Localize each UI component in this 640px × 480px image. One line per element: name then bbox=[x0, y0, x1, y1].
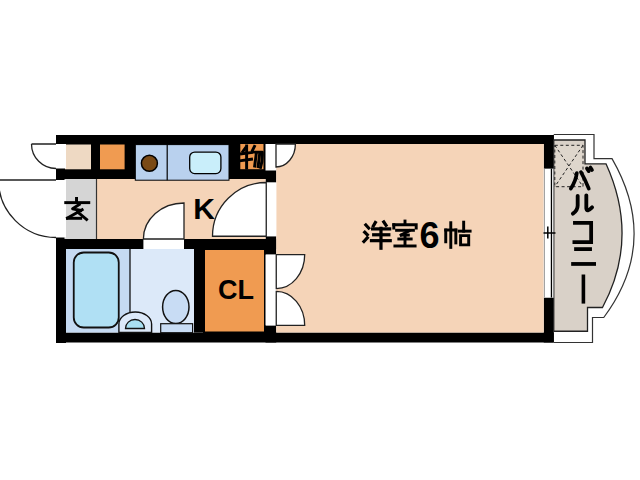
svg-text:6: 6 bbox=[419, 215, 439, 256]
svg-text:K: K bbox=[193, 192, 215, 225]
svg-text:CL: CL bbox=[218, 275, 254, 305]
